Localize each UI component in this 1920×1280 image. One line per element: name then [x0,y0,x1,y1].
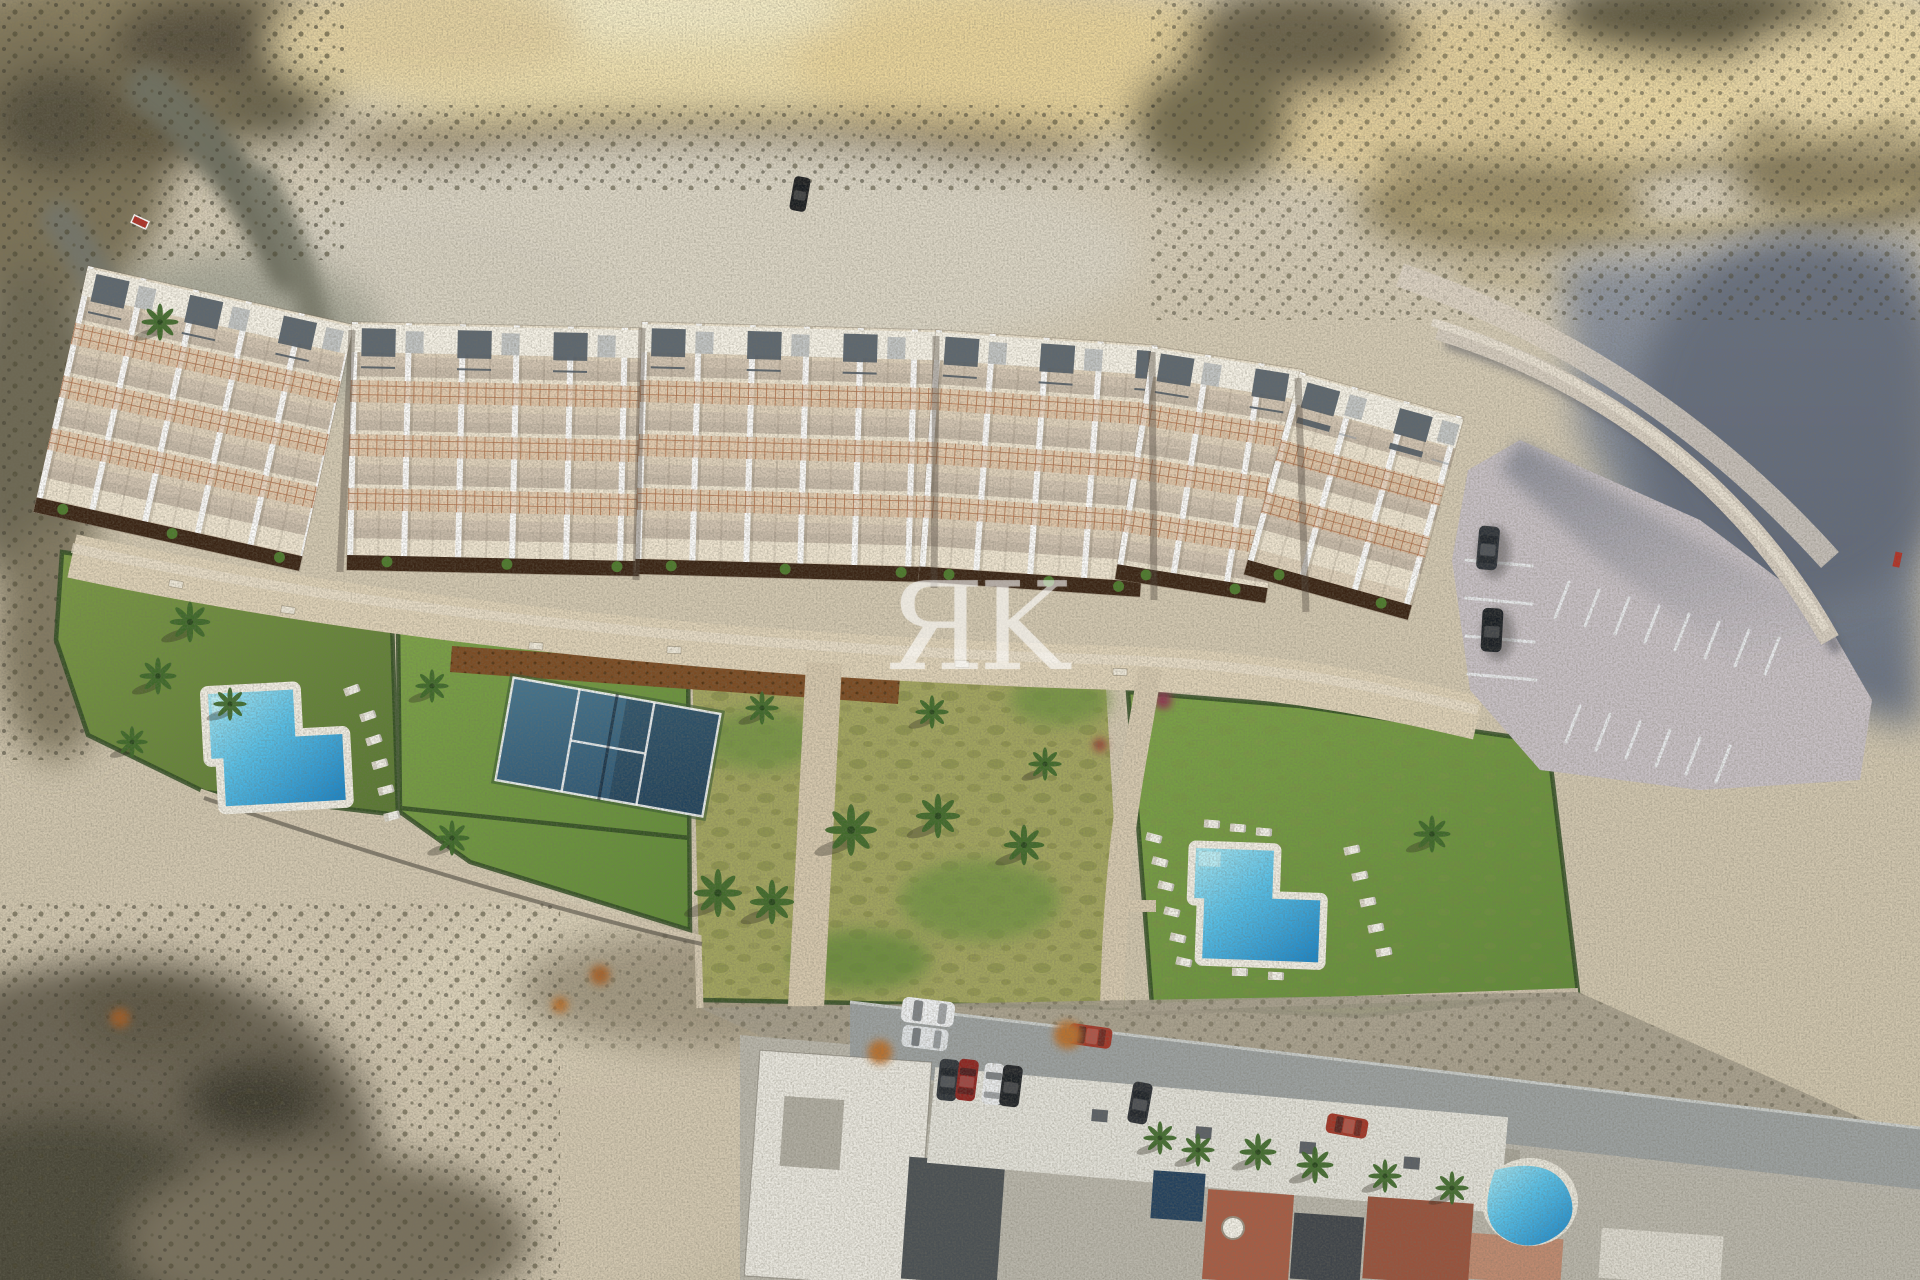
grain-overlay [0,0,1920,1280]
aerial-render-scene: ЯK [0,0,1920,1280]
aerial-render-svg [0,0,1920,1280]
